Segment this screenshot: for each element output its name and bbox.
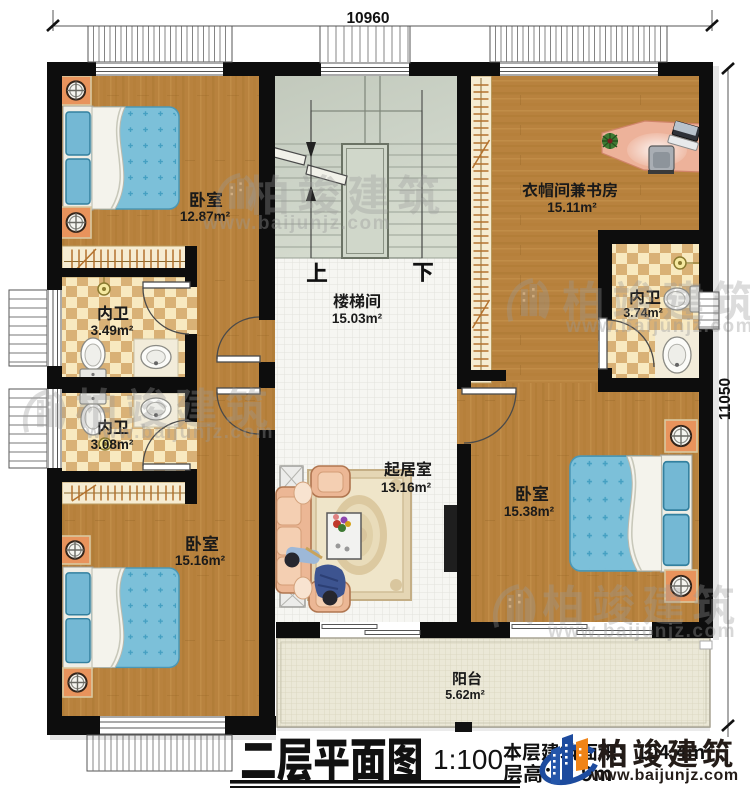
svg-text:www.baijunjz.com: www.baijunjz.com <box>85 422 274 443</box>
svg-text:www.baijunjz.com: www.baijunjz.com <box>565 316 750 337</box>
svg-text:www.baijunjz.com: www.baijunjz.com <box>590 767 739 784</box>
svg-text:www.baijunjz.com: www.baijunjz.com <box>202 213 391 234</box>
svg-text:15.16m²: 15.16m² <box>175 553 226 568</box>
svg-text:10960: 10960 <box>346 10 389 27</box>
svg-text:15.03m²: 15.03m² <box>332 311 383 326</box>
svg-text:www.baijunjz.com: www.baijunjz.com <box>547 621 736 642</box>
svg-text:11050: 11050 <box>717 378 734 420</box>
svg-text:5.62m²: 5.62m² <box>445 688 485 702</box>
svg-text:1:100: 1:100 <box>433 744 503 775</box>
svg-text:13.16m²: 13.16m² <box>381 480 432 495</box>
svg-text:15.38m²: 15.38m² <box>504 504 555 519</box>
svg-text:3.49m²: 3.49m² <box>91 323 134 338</box>
svg-text:15.11m²: 15.11m² <box>547 200 597 215</box>
